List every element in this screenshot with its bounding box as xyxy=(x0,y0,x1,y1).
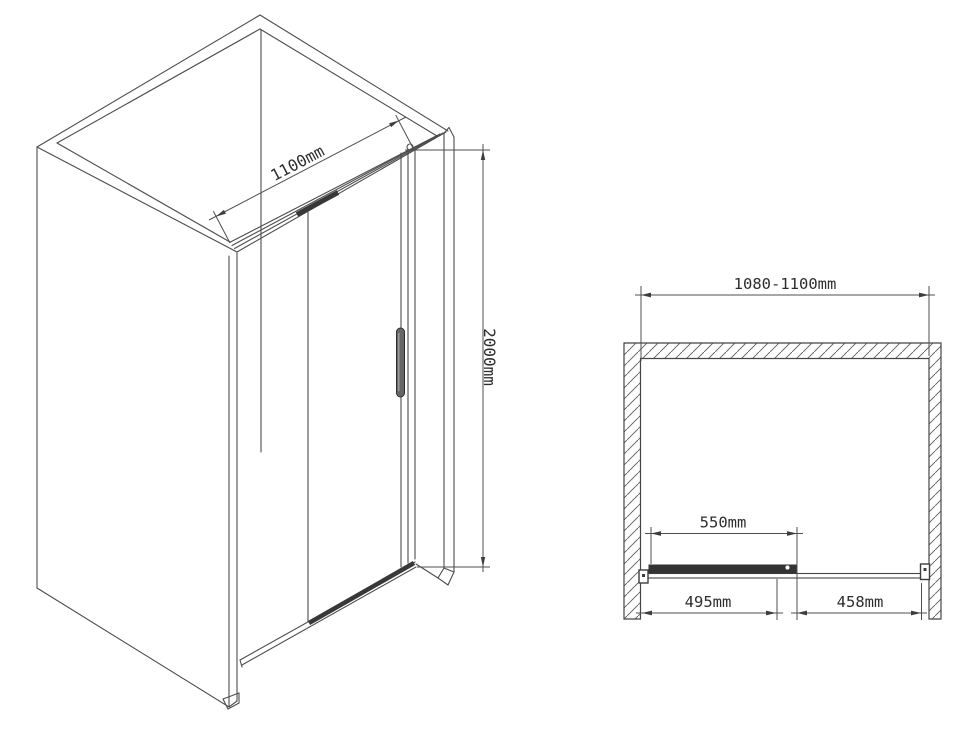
wall-profile xyxy=(416,128,454,586)
corner-post xyxy=(223,253,239,709)
plan-door-width-label: 550mm xyxy=(700,514,747,532)
bottom-rail xyxy=(240,562,416,667)
door-handle xyxy=(397,328,405,397)
door-roller-dot xyxy=(785,565,790,570)
plan-right-section-label: 458mm xyxy=(837,593,884,611)
door-bottom-guide xyxy=(309,563,414,623)
top-frame xyxy=(37,15,448,252)
plan-right-section-dimension: 458mm xyxy=(791,583,927,620)
shower-door-technical-drawing: 1100mm 2000mm 1080- xyxy=(0,0,976,737)
bottom-track xyxy=(645,574,925,579)
wall-bracket-left xyxy=(639,570,648,583)
sliding-door-panel xyxy=(649,565,797,573)
drawing-canvas: 1100mm 2000mm 1080- xyxy=(0,0,976,737)
left-wall-panel xyxy=(37,147,237,707)
iso-height-dimension-label: 2000mm xyxy=(480,328,499,386)
isometric-view: 1100mm 2000mm xyxy=(37,15,499,709)
iso-height-dimension: 2000mm xyxy=(405,144,499,572)
plan-total-width-label: 1080-1100mm xyxy=(734,275,837,293)
iso-width-dimension: 1100mm xyxy=(209,115,413,243)
wall-bracket-right xyxy=(921,564,930,580)
plan-left-section-dimension: 495mm xyxy=(636,579,783,620)
plan-view: 1080-1100mm xyxy=(624,275,941,620)
plan-left-section-label: 495mm xyxy=(685,593,732,611)
door-hanger-bar xyxy=(297,193,338,215)
